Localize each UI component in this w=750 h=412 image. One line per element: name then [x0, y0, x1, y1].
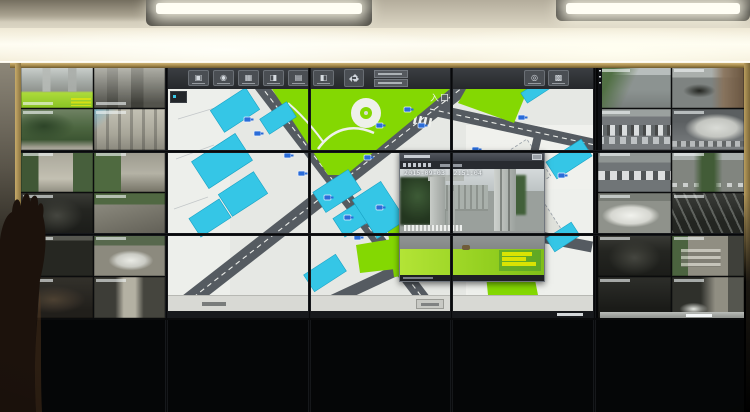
camera-feed-R09[interactable]	[598, 235, 671, 276]
ceiling	[0, 0, 750, 63]
camera-osd-text	[600, 69, 630, 72]
panel-bezel	[165, 67, 168, 412]
map-taskbar	[168, 311, 595, 318]
camera-osd-text	[674, 237, 704, 240]
map-toolbar-button-2[interactable]: ◉	[213, 70, 234, 86]
map-toolbar-button-4[interactable]: ◨	[263, 70, 284, 86]
camera-osd-text	[600, 279, 630, 282]
pan-left-icon	[346, 76, 352, 82]
camera-osd-text	[674, 195, 704, 198]
camera-osd-text	[96, 111, 126, 114]
cove-lighting	[0, 28, 750, 62]
map-status-bar	[168, 295, 595, 311]
camera-feed-R06[interactable]	[672, 151, 745, 192]
layers-icon: ▩	[555, 74, 563, 82]
camera-feed-R05[interactable]	[598, 151, 671, 192]
camera-feed-R02[interactable]	[672, 67, 745, 108]
ceiling-light-fixture	[146, 0, 372, 26]
camera-osd-text	[600, 237, 630, 240]
popup-video-frame[interactable]	[400, 169, 544, 275]
map-info-boxes	[374, 70, 408, 87]
camera-feed-L01[interactable]	[21, 67, 93, 108]
popup-title-bar[interactable]	[400, 152, 544, 161]
map-toolbar-right-buttons: ◎▩	[524, 70, 569, 86]
right-camera-grid	[598, 67, 744, 318]
map-toolbar-button-1[interactable]: ▣	[188, 70, 209, 86]
camera-osd-text	[23, 102, 53, 105]
camera-caption-overlay	[71, 98, 91, 106]
camera-osd-text	[600, 153, 630, 156]
camera-osd-text	[600, 195, 630, 198]
channel-chips[interactable]	[403, 163, 433, 167]
map-toolbar-right-button-2[interactable]: ▩	[548, 70, 569, 86]
popup-title-text	[404, 155, 430, 158]
monitor-icon: ▣	[195, 74, 203, 82]
light-glow	[566, 3, 740, 14]
popup-channel-bar	[400, 161, 544, 169]
hand-silhouette	[0, 140, 110, 412]
control-room-photo: ▣◉▦◨▤◧ ◎▩	[0, 0, 750, 412]
video-figure	[462, 245, 470, 250]
camera-feed-R08[interactable]	[672, 193, 745, 234]
camera-icon: ◉	[220, 74, 227, 82]
map-scale-chip	[170, 91, 187, 103]
map-toolbar: ▣◉▦◨▤◧ ◎▩	[168, 67, 595, 89]
chip-dot-icon	[173, 95, 176, 98]
panel-bezel	[21, 150, 744, 153]
map-toolbar-buttons: ▣◉▦◨▤◧	[188, 70, 334, 86]
camera-osd-text	[600, 111, 630, 114]
taskbar-text	[557, 313, 583, 316]
map-info-box[interactable]	[374, 79, 408, 87]
camera-osd-text	[674, 279, 704, 282]
camera-feed-R01[interactable]	[598, 67, 671, 108]
panel-bezel	[308, 67, 311, 412]
video-wall-screens: ▣◉▦◨▤◧ ◎▩	[21, 67, 744, 412]
right-app-edge-strip	[598, 67, 602, 153]
camera-osd-text	[674, 111, 704, 114]
camera-osd-text	[96, 102, 126, 105]
document-icon: ▤	[295, 74, 303, 82]
status-text	[202, 302, 226, 306]
map-toolbar-right-button-1[interactable]: ◎	[524, 70, 545, 86]
panel-content-edge	[21, 318, 744, 320]
camera-feed-R03[interactable]	[598, 109, 671, 150]
camera-feed-R10[interactable]	[672, 235, 745, 276]
map-toolbar-button-6[interactable]: ◧	[313, 70, 334, 86]
camera-feed-R07[interactable]	[598, 193, 671, 234]
panel-bezel	[593, 67, 596, 412]
camera-osd-text	[23, 111, 53, 114]
video-timestamp: 2015-09-03 12:51:04	[404, 170, 482, 177]
split-screen-icon: ◨	[270, 74, 278, 82]
operator-icon: ◧	[320, 74, 328, 82]
camera-feed-L02[interactable]	[94, 67, 166, 108]
live-video-popup[interactable]: 2015-09-03 12:51:04	[399, 151, 545, 282]
camera-osd-text	[674, 69, 704, 72]
video-caption-overlay	[499, 250, 541, 271]
map-tooltip-label	[416, 299, 444, 309]
map-road-label: 入口	[430, 93, 450, 104]
panel-bezel	[21, 233, 744, 236]
popup-window-button[interactable]	[532, 154, 542, 160]
map-toolbar-button-3[interactable]: ▦	[238, 70, 259, 86]
grid-view-icon: ▦	[245, 74, 253, 82]
pan-arrows-control[interactable]	[344, 69, 364, 87]
camera-osd-text	[674, 153, 704, 156]
popup-status-strip	[400, 275, 544, 281]
wall-frame-right	[744, 62, 750, 282]
ceiling-corner-shadow	[0, 0, 148, 22]
light-glow	[156, 3, 362, 14]
map-info-box[interactable]	[374, 70, 408, 78]
camera-feed-R04[interactable]	[672, 109, 745, 150]
taskbar-clock-text	[686, 314, 712, 317]
panel-bezel	[450, 67, 453, 412]
map-toolbar-button-5[interactable]: ▤	[288, 70, 309, 86]
ceiling-light-fixture	[556, 0, 750, 21]
pan-right-icon	[356, 76, 362, 82]
compass-icon: ◎	[531, 74, 538, 82]
